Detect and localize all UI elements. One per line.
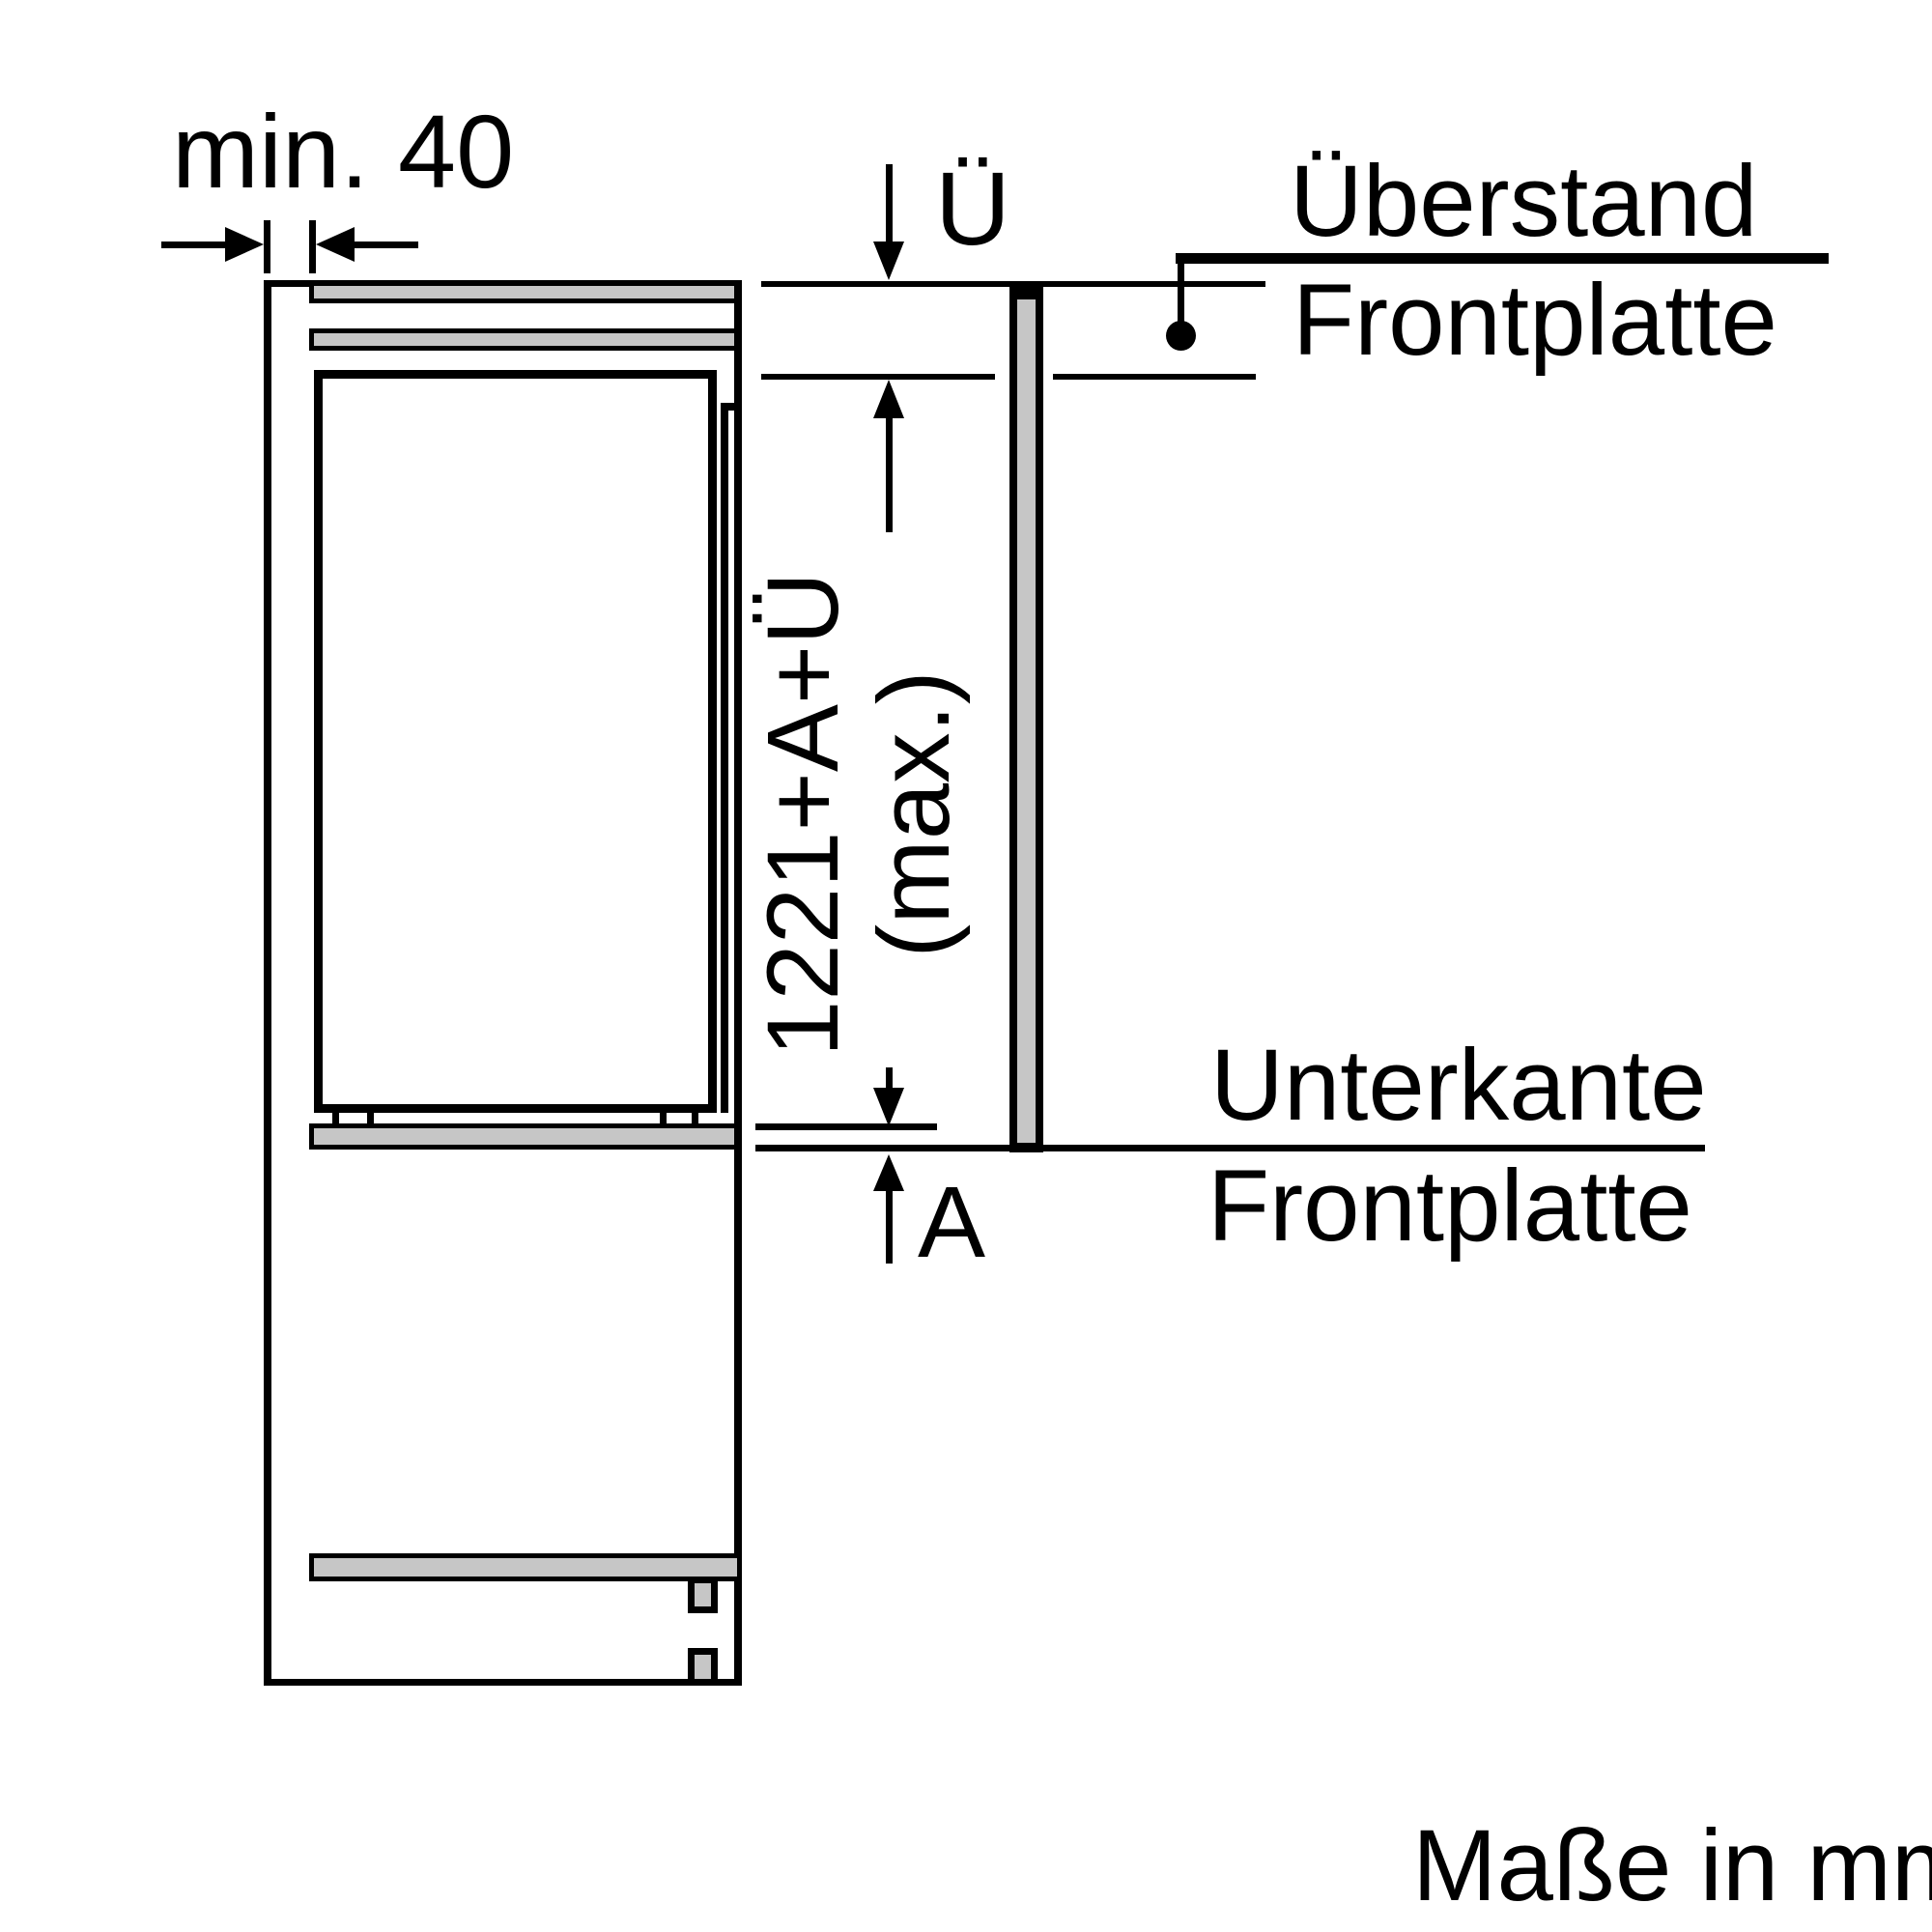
niche-top-panel [309,281,742,303]
overhang-leader-dot [1166,321,1196,351]
label-bottom-edge-line1: Unterkante [1210,1035,1707,1136]
dim-bottom-gap-label: A [918,1172,985,1273]
label-overhang-line2: Frontplatte [1293,270,1777,371]
label-overhang-line1: Überstand [1290,151,1757,252]
dim-panel-height-line2: (max.) [859,467,970,1162]
cabinet-left-wall-line [264,280,271,1686]
lower-shelf-panel [309,1553,742,1581]
dim-min-gap-label: min. 40 [172,99,514,204]
bottom-gap-arrow-up-icon [873,1154,904,1191]
height-arrow-down-icon [873,1088,904,1126]
min-gap-arrow-left-shaft [161,241,225,248]
label-bottom-edge-line2: Frontplatte [1207,1155,1692,1257]
height-arrow-up-icon [873,380,904,418]
min-gap-arrow-right-icon [225,227,264,262]
niche-vent-panel [309,328,742,351]
overhang-label-underline [1176,253,1829,264]
installation-diagram: min. 40 Ü Überstand Frontplatte 1221+A+Ü… [0,0,1932,1932]
front-panel-bar [1009,283,1043,1152]
dim-panel-height-label: 1221+A+Ü (max.) [748,467,970,1162]
min-gap-arrow-right-shaft [355,241,418,248]
min-gap-tick-left [264,220,270,273]
appliance-base-panel [309,1123,739,1150]
overhang-arrow-down-icon [873,241,904,280]
overhang-arrow-shaft [886,164,893,241]
height-arrow-shaft-bottom [886,1067,893,1090]
min-gap-arrow-left-icon [316,227,355,262]
appliance-body-outline [314,370,717,1113]
bottom-gap-arrow-shaft [886,1191,893,1264]
dim-panel-height-line1: 1221+A+Ü [748,467,859,1162]
cabinet-bottom-line [264,1679,742,1686]
units-note: Maße in mm [1412,1815,1932,1917]
plinth-block-upper [688,1577,718,1613]
door-top-reference-line-right [1053,374,1256,380]
dim-overhang-label: Ü [935,156,1010,261]
door-bottom-reference-line [755,1123,937,1130]
cabinet-right-edge-line [734,280,742,1686]
min-gap-tick-right [309,220,316,273]
appliance-door-line [721,403,728,1113]
